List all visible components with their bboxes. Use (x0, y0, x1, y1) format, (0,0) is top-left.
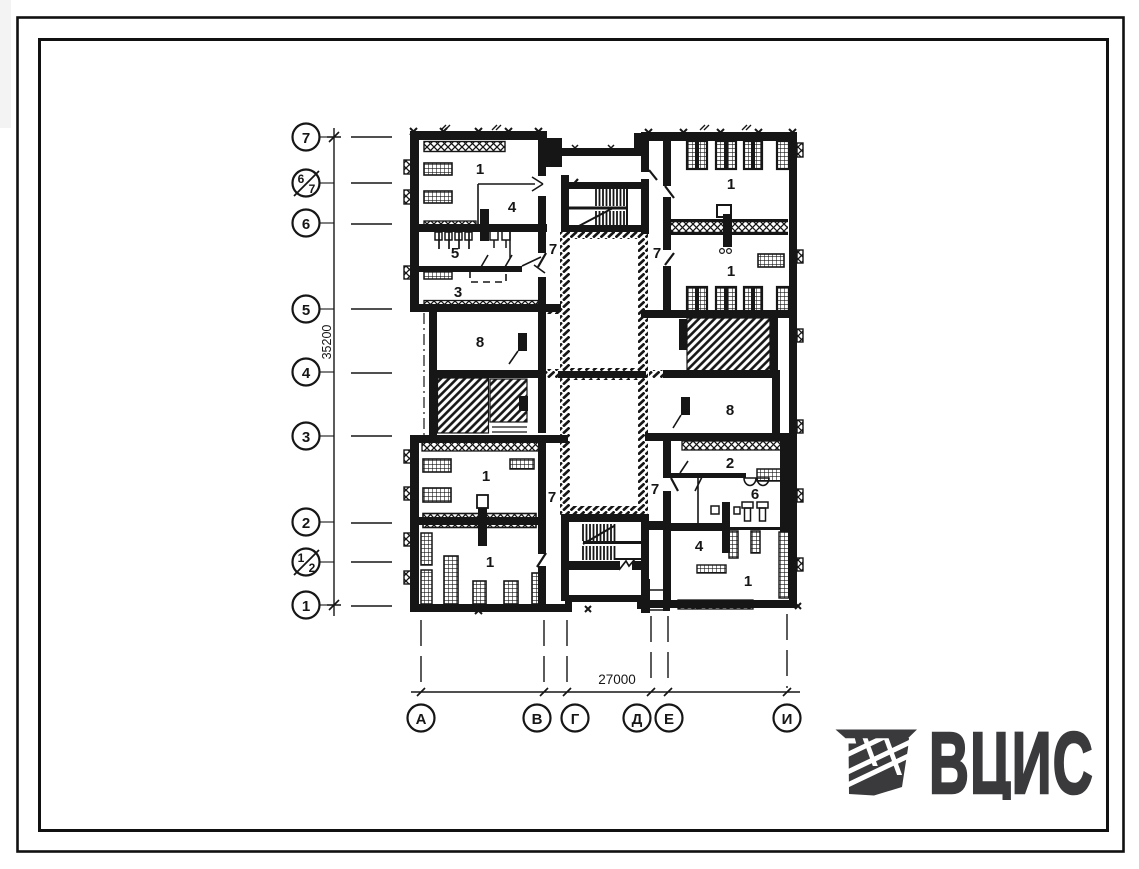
svg-text:4: 4 (695, 538, 704, 555)
svg-text:1: 1 (476, 161, 484, 178)
svg-text:Г: Г (571, 711, 580, 728)
svg-text:7: 7 (309, 182, 316, 196)
svg-text:35200: 35200 (320, 325, 334, 360)
svg-text:4: 4 (508, 199, 517, 216)
svg-text:1: 1 (727, 263, 735, 280)
svg-text:1: 1 (302, 598, 310, 615)
svg-text:2: 2 (726, 455, 734, 472)
svg-text:1: 1 (727, 176, 735, 193)
svg-text:6: 6 (298, 172, 305, 186)
svg-text:7: 7 (302, 130, 310, 147)
svg-text:4: 4 (302, 365, 311, 382)
svg-text:1: 1 (744, 573, 752, 590)
svg-text:7: 7 (653, 245, 661, 262)
svg-text:6: 6 (302, 216, 310, 233)
svg-text:И: И (782, 711, 793, 728)
svg-text:ВЦИС: ВЦИС (929, 715, 1094, 812)
svg-text:А: А (416, 711, 427, 728)
svg-text:2: 2 (302, 515, 310, 532)
svg-text:3: 3 (454, 284, 462, 301)
svg-text:Д: Д (632, 711, 643, 728)
svg-text:1: 1 (486, 554, 494, 571)
svg-text:6: 6 (751, 486, 759, 503)
svg-text:1: 1 (482, 468, 490, 485)
svg-text:2: 2 (309, 561, 316, 575)
svg-text:8: 8 (726, 402, 734, 419)
svg-text:5: 5 (451, 245, 459, 262)
svg-text:27000: 27000 (598, 672, 636, 687)
svg-text:В: В (532, 711, 543, 728)
svg-text:1: 1 (298, 551, 305, 565)
svg-text:8: 8 (476, 334, 484, 351)
svg-text:7: 7 (651, 481, 659, 498)
svg-text:Е: Е (664, 711, 674, 728)
svg-text:3: 3 (302, 429, 310, 446)
svg-text:5: 5 (302, 302, 310, 319)
svg-text:7: 7 (548, 489, 556, 506)
svg-text:7: 7 (549, 241, 557, 258)
